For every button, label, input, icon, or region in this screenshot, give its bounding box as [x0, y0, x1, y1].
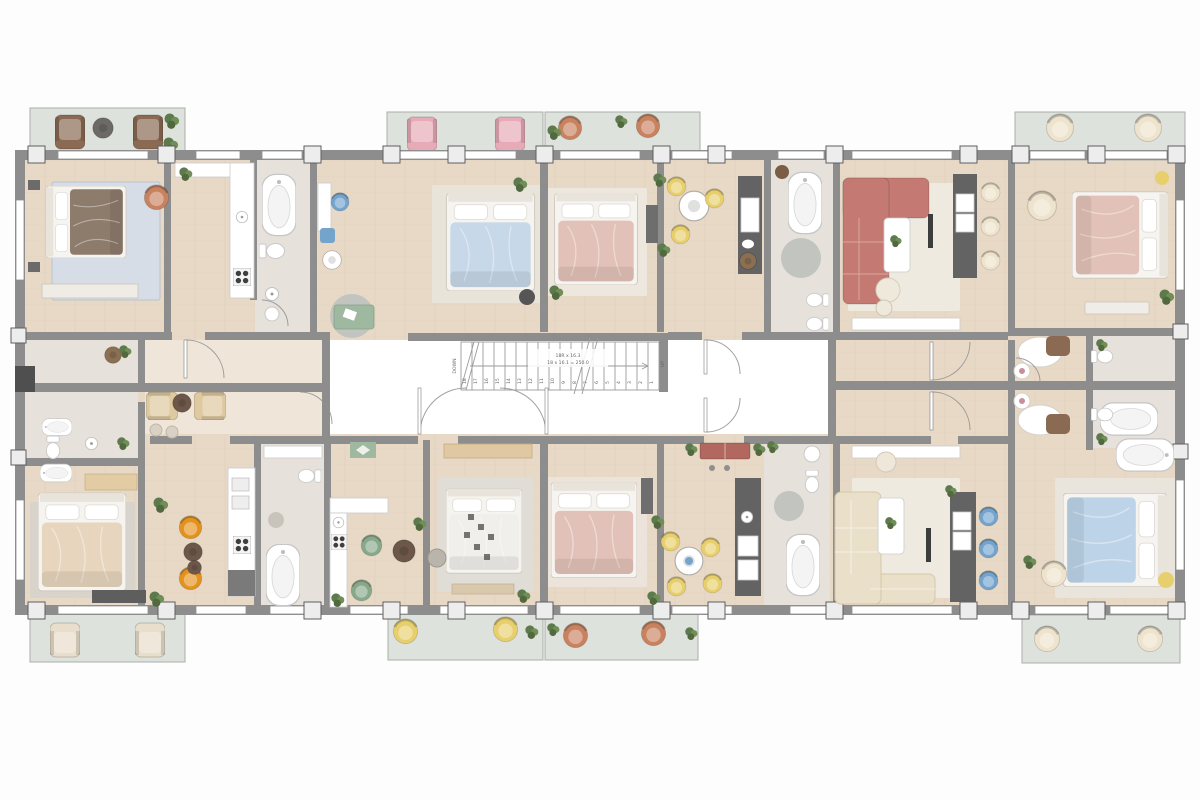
vanity-counter	[264, 446, 322, 458]
side-table	[173, 394, 191, 412]
door-leaf	[704, 340, 707, 374]
bathtub	[788, 172, 822, 233]
stair-tread-number: 11	[539, 378, 545, 384]
stair-annotation: 18 x 16.1 = 250.0	[547, 360, 589, 366]
armchair	[407, 117, 437, 151]
stove	[233, 268, 251, 286]
dresser	[1085, 302, 1149, 314]
bathtub	[42, 419, 72, 436]
bar-chair	[981, 183, 1000, 202]
stair-tread-number: 5	[605, 381, 611, 384]
desk-chair	[1046, 414, 1070, 434]
round-chair	[1137, 626, 1162, 651]
bar-chair	[979, 571, 998, 590]
sink	[266, 288, 279, 301]
stair-annotation: 18R x 16.3	[556, 353, 581, 359]
dining-chair	[667, 177, 686, 196]
door-leaf	[418, 388, 421, 434]
armchair	[194, 392, 226, 420]
stair-tread-number: 14	[506, 378, 512, 384]
stair-tread-number: 4	[616, 381, 622, 384]
bar-chair	[979, 507, 998, 526]
stool	[166, 426, 178, 438]
shoes	[709, 465, 715, 471]
stool	[876, 300, 892, 316]
stair-down-label: DOWN	[452, 358, 458, 373]
sink	[85, 437, 97, 449]
stool	[150, 424, 162, 436]
pouf	[519, 289, 535, 305]
plate	[685, 557, 693, 565]
round-chair	[393, 619, 417, 643]
bed	[555, 193, 638, 285]
armchair	[133, 115, 163, 149]
round-chair	[1047, 115, 1074, 142]
toilet	[298, 469, 321, 482]
armchair	[135, 623, 165, 657]
wardrobe	[92, 590, 146, 603]
stove	[233, 536, 251, 554]
nightstand	[28, 262, 40, 272]
bathtub	[266, 544, 300, 605]
nightstand	[1155, 171, 1169, 185]
round-chair	[1034, 626, 1059, 651]
wardrobe	[444, 444, 532, 458]
kitchen-counter	[330, 498, 388, 513]
round-rug	[774, 491, 804, 521]
balcony-bottom-mid-right	[545, 612, 698, 660]
stair-tread-number: 7	[583, 381, 589, 384]
headboard-shelf	[85, 474, 137, 490]
bar-chair	[981, 217, 1000, 236]
armchair	[50, 623, 80, 657]
toilet	[46, 436, 59, 459]
balcony-bottom-right	[1022, 615, 1180, 663]
kitchen-sink	[232, 496, 249, 509]
toilet	[806, 293, 829, 306]
stair-tread-number: 15	[495, 378, 501, 384]
bed	[1072, 192, 1168, 278]
oven	[956, 214, 974, 232]
console-table	[852, 446, 960, 458]
cooktop	[953, 512, 971, 530]
stair-tread-number: 16	[484, 378, 490, 384]
dresser	[641, 478, 653, 514]
round-chair	[558, 116, 581, 139]
dining-chair	[351, 580, 372, 601]
lounge-chair	[1041, 561, 1066, 586]
kitchen-sink	[236, 211, 247, 222]
counter-dark	[228, 570, 255, 596]
stair-tread-number: 10	[550, 378, 556, 384]
door-leaf	[930, 342, 933, 380]
round-chair	[493, 617, 517, 641]
round-table	[184, 543, 202, 561]
oven	[741, 198, 759, 232]
toilet	[1091, 408, 1113, 421]
stair-tread-number: 18	[462, 378, 468, 384]
tv	[926, 528, 931, 562]
stair-up-label: UP	[660, 361, 666, 367]
stair-tread-number: 3	[627, 381, 633, 384]
bidet	[806, 317, 829, 330]
dining-chair	[701, 538, 720, 557]
round-chair	[641, 621, 665, 645]
nightstand	[28, 180, 40, 190]
kitchen-sink	[741, 511, 752, 522]
bed	[551, 482, 637, 578]
stool	[268, 512, 284, 528]
dining-chair	[661, 532, 680, 551]
stair-tread-number: 2	[638, 381, 644, 384]
desk-chair	[331, 193, 349, 211]
door-leaf	[704, 398, 707, 432]
dresser	[42, 284, 138, 298]
toilet	[1091, 350, 1113, 363]
bed-bench	[452, 584, 514, 594]
stove	[331, 534, 347, 550]
kitchen-sink	[742, 240, 754, 249]
round-table	[188, 561, 202, 575]
bed	[46, 186, 126, 258]
dining-chair	[667, 577, 686, 596]
plant-pot	[775, 165, 789, 179]
accent-chair	[144, 185, 168, 209]
bed	[1063, 493, 1167, 587]
side-table	[93, 118, 113, 138]
toilet	[259, 244, 285, 259]
door-leaf	[184, 340, 187, 378]
round-table	[393, 540, 415, 562]
staircase: 18R x 16.3 18 x 16.1 = 250.0 DOWN UP 18 …	[452, 338, 666, 394]
stair-tread-number: 17	[473, 378, 479, 384]
stair-tread-number: 13	[517, 378, 523, 384]
floor-plan: 18R x 16.3 18 x 16.1 = 250.0 DOWN UP 18 …	[0, 0, 1200, 800]
round-chair	[876, 452, 896, 472]
closet	[15, 366, 35, 392]
stair-tread-number: 9	[561, 381, 567, 384]
bathtub	[786, 534, 820, 595]
round-chair	[636, 114, 659, 137]
oven	[738, 560, 758, 580]
bathtub	[40, 464, 72, 482]
lounge-chair	[1028, 192, 1057, 221]
flowers	[1019, 398, 1025, 404]
bathroom-floor	[20, 340, 138, 384]
shoes	[724, 465, 730, 471]
stair-tread-number: 1	[649, 381, 655, 384]
kitchen-sink	[333, 517, 344, 528]
door-leaf	[930, 392, 933, 430]
stool	[740, 253, 757, 270]
round-rug	[781, 238, 821, 278]
laundry-basket	[265, 307, 279, 321]
stair-tread-number: 12	[528, 378, 534, 384]
dining-chair	[361, 535, 382, 556]
stool	[320, 228, 335, 243]
nightstand	[1158, 572, 1174, 588]
console-table	[852, 318, 960, 330]
side-table	[105, 347, 122, 364]
cooktop	[738, 536, 758, 556]
armchair	[55, 115, 85, 149]
desk-chair	[1046, 336, 1070, 356]
pouf	[876, 278, 900, 302]
kitchen-sink	[232, 478, 249, 491]
sink	[804, 446, 820, 462]
oven	[953, 532, 971, 550]
side-table	[323, 251, 341, 269]
round-chair	[563, 623, 587, 647]
round-chair	[1135, 115, 1162, 142]
armchair	[495, 117, 525, 151]
dining-table	[679, 191, 709, 221]
door-leaf	[545, 388, 548, 434]
dining-chair	[671, 225, 690, 244]
bathtub	[262, 174, 296, 235]
bed	[446, 193, 534, 291]
desk	[318, 183, 331, 231]
dresser	[646, 205, 658, 243]
bar-chair	[981, 251, 1000, 270]
dining-chair	[179, 516, 202, 539]
dining-chair	[705, 189, 724, 208]
dining-chair	[703, 574, 722, 593]
sofa-l-body	[835, 492, 881, 604]
stair-tread-number: 6	[594, 381, 600, 384]
bar-chair	[979, 539, 998, 558]
bed	[446, 489, 522, 573]
tv	[928, 214, 933, 248]
pouf	[428, 549, 446, 567]
bathtub	[1116, 439, 1174, 471]
flowers	[1019, 368, 1025, 374]
toilet	[805, 470, 818, 493]
cooktop	[956, 194, 974, 212]
bed	[38, 493, 126, 591]
stair-tread-number: 8	[572, 381, 578, 384]
